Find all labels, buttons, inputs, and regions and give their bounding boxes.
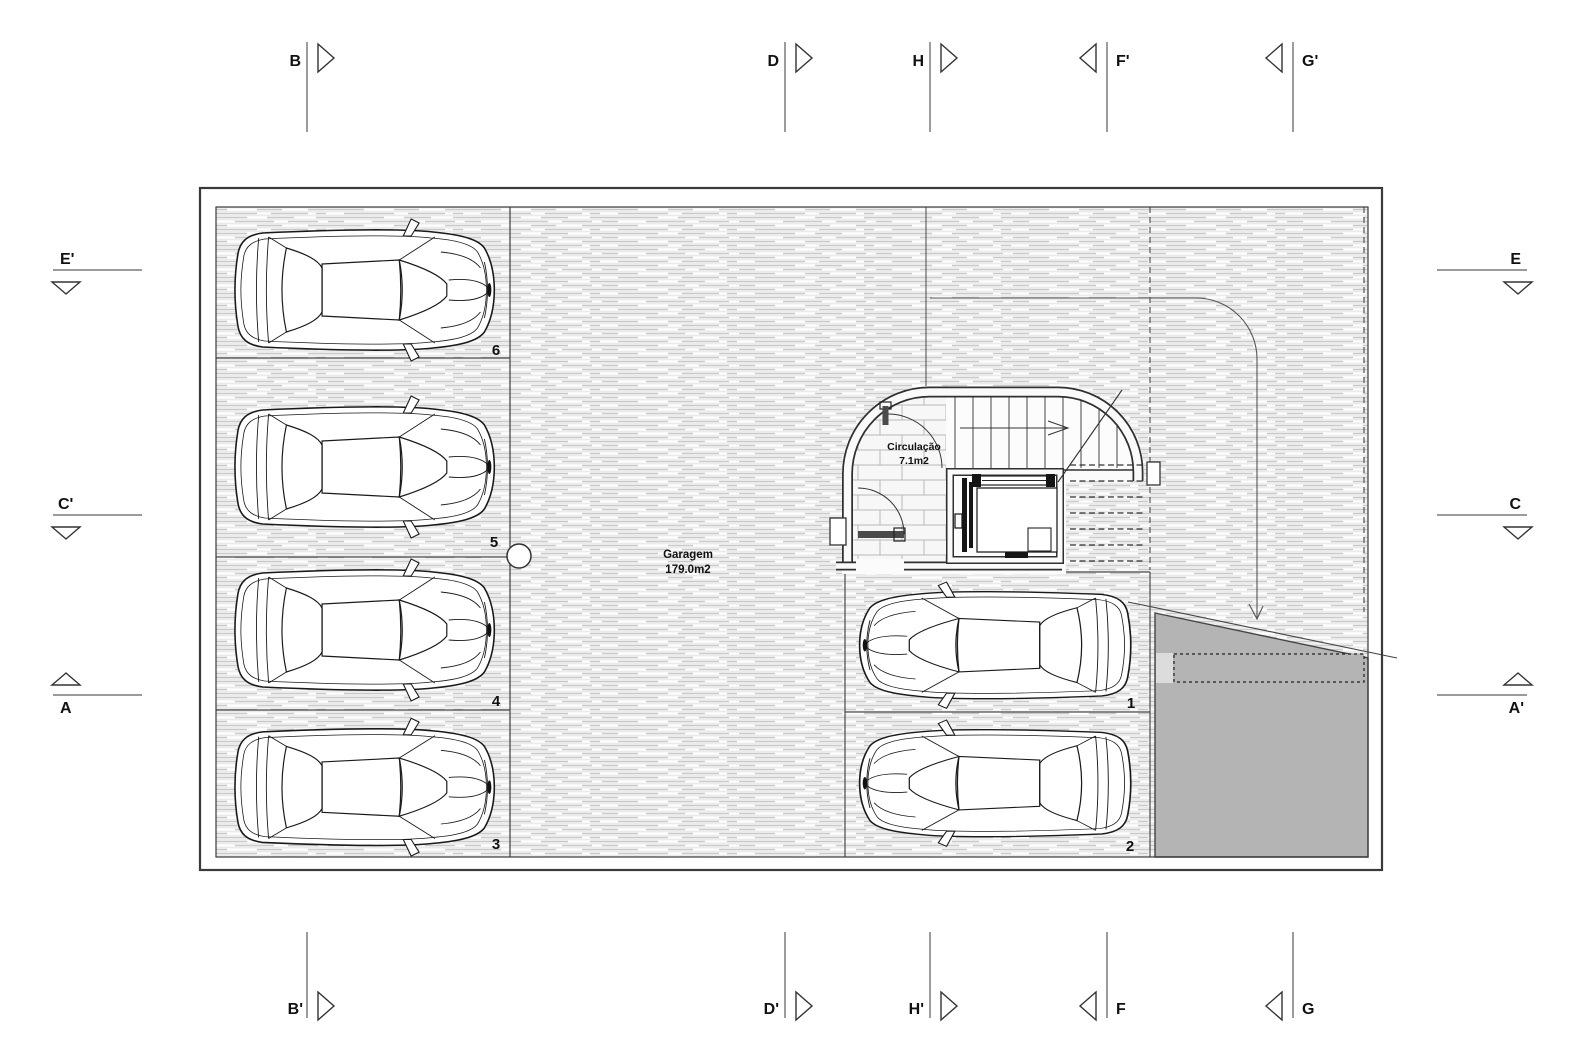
car-1	[860, 582, 1131, 708]
ramp-slab-dashed	[1174, 654, 1364, 682]
section-arrow-C-prime	[52, 527, 80, 539]
section-label-E-prime: E'	[60, 251, 74, 268]
stall-number-5: 5	[490, 534, 498, 551]
section-arrow-E	[1504, 282, 1532, 294]
door-opening	[856, 559, 904, 573]
section-arrow-D	[796, 44, 812, 72]
section-arrow-G	[1266, 992, 1282, 1020]
wall-pilaster-left	[830, 518, 846, 545]
door-leaf-upper	[883, 406, 889, 425]
stall-number-3: 3	[492, 836, 500, 853]
section-arrow-D-prime	[796, 992, 812, 1020]
section-arrow-G-prime	[1266, 44, 1282, 72]
section-arrow-C	[1504, 527, 1532, 539]
car-3	[235, 718, 494, 856]
section-label-H: H	[912, 53, 924, 70]
car-6	[235, 219, 494, 361]
section-label-F: F	[1116, 1001, 1126, 1018]
section-arrow-F-prime	[1080, 44, 1096, 72]
section-arrow-B-prime	[318, 992, 334, 1020]
car-4	[235, 559, 494, 701]
elevator	[950, 472, 1060, 560]
stall-number-2: 2	[1126, 838, 1134, 855]
garage-floor-plan: Garagem 179.0m2 Circulação 7.1m2 6 5 4 3…	[0, 0, 1572, 1058]
section-label-C: C	[1509, 496, 1521, 513]
garagem-area: 179.0m2	[665, 564, 710, 576]
stall-number-6: 6	[492, 342, 500, 359]
section-arrow-A-prime	[1504, 673, 1532, 685]
garagem-label: Garagem	[663, 549, 713, 561]
section-label-C-prime: C'	[58, 496, 73, 513]
section-arrow-A	[52, 673, 80, 685]
section-label-H-prime: H'	[909, 1001, 924, 1018]
section-arrow-E-prime	[52, 282, 80, 294]
stall-number-4: 4	[492, 693, 501, 710]
car-5	[235, 396, 494, 538]
section-label-G: G	[1302, 1001, 1314, 1018]
section-label-F-prime: F'	[1116, 53, 1130, 70]
plan-drawing: Garagem 179.0m2 Circulação 7.1m2 6 5 4 3…	[0, 0, 1572, 1058]
ramp-notch	[1156, 653, 1173, 683]
section-label-G-prime: G'	[1302, 53, 1318, 70]
car-2	[860, 720, 1131, 846]
section-label-A-prime: A'	[1509, 700, 1524, 717]
section-arrow-F	[1080, 992, 1096, 1020]
wall-pilaster-right	[1147, 462, 1160, 485]
section-arrow-H-prime	[941, 992, 957, 1020]
section-label-D: D	[767, 53, 779, 70]
section-label-A: A	[60, 700, 72, 717]
elevator-rail	[969, 482, 973, 548]
stall-number-1: 1	[1127, 695, 1135, 712]
section-label-B: B	[289, 53, 301, 70]
section-label-B-prime: B'	[288, 1001, 303, 1018]
elevator-rail	[962, 478, 967, 552]
column-circle	[507, 544, 531, 568]
section-arrow-B	[318, 44, 334, 72]
section-arrow-H	[941, 44, 957, 72]
door-leaf-lower	[858, 531, 904, 538]
circulacao-label: Circulação	[887, 441, 941, 453]
section-label-D-prime: D'	[764, 1001, 779, 1018]
circulacao-area: 7.1m2	[899, 455, 929, 467]
section-label-E: E	[1510, 251, 1521, 268]
